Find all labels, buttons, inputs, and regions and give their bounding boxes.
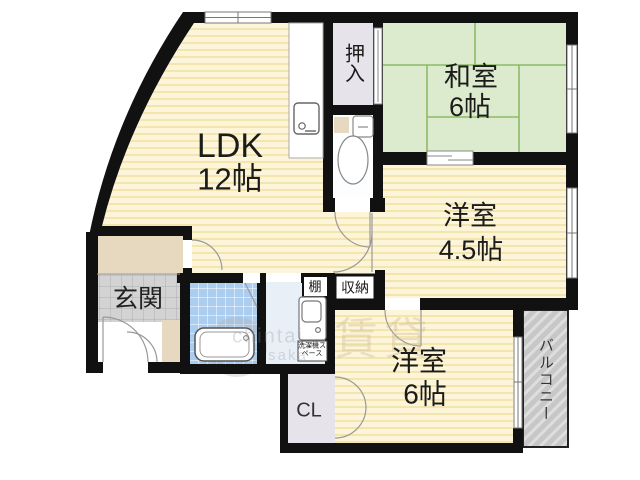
western-room-45-label: 洋室 [443,202,497,230]
western-room-6-label: 洋室 [391,346,447,375]
cl-label: CL [296,401,322,422]
oshiire-label: 押入 [342,43,363,83]
ldk-size: 12帖 [197,164,262,197]
floor-plan: chintai saka 賃貸 LDK 12帖 和室 6帖 洋室 4.5帖 洋室… [0,0,640,480]
watermark-latin-1: chintai [232,327,304,348]
room-western-4-5 [377,165,566,298]
entrance-label: 玄関 [113,286,163,312]
toilet-shelf [334,117,349,133]
washer-space-label: 洗濯機スペース [297,343,327,360]
western-room-45-size: 4.5帖 [439,236,504,264]
japanese-room-size: 6帖 [449,93,491,121]
western-room-6-size: 6帖 [403,379,447,408]
kitchen-sink [294,103,319,134]
shelf-label: 棚 [308,280,321,294]
hall-wood-floor [97,236,183,274]
japanese-room-label: 和室 [444,63,498,91]
balcony-label: バルコニー [537,338,553,423]
kitchen-counter [289,23,323,158]
ldk-label: LDK [197,129,263,165]
shoe-cabinet [162,320,180,362]
storage-label: 収納 [341,281,369,296]
fusuma-japanese-room [427,151,473,165]
